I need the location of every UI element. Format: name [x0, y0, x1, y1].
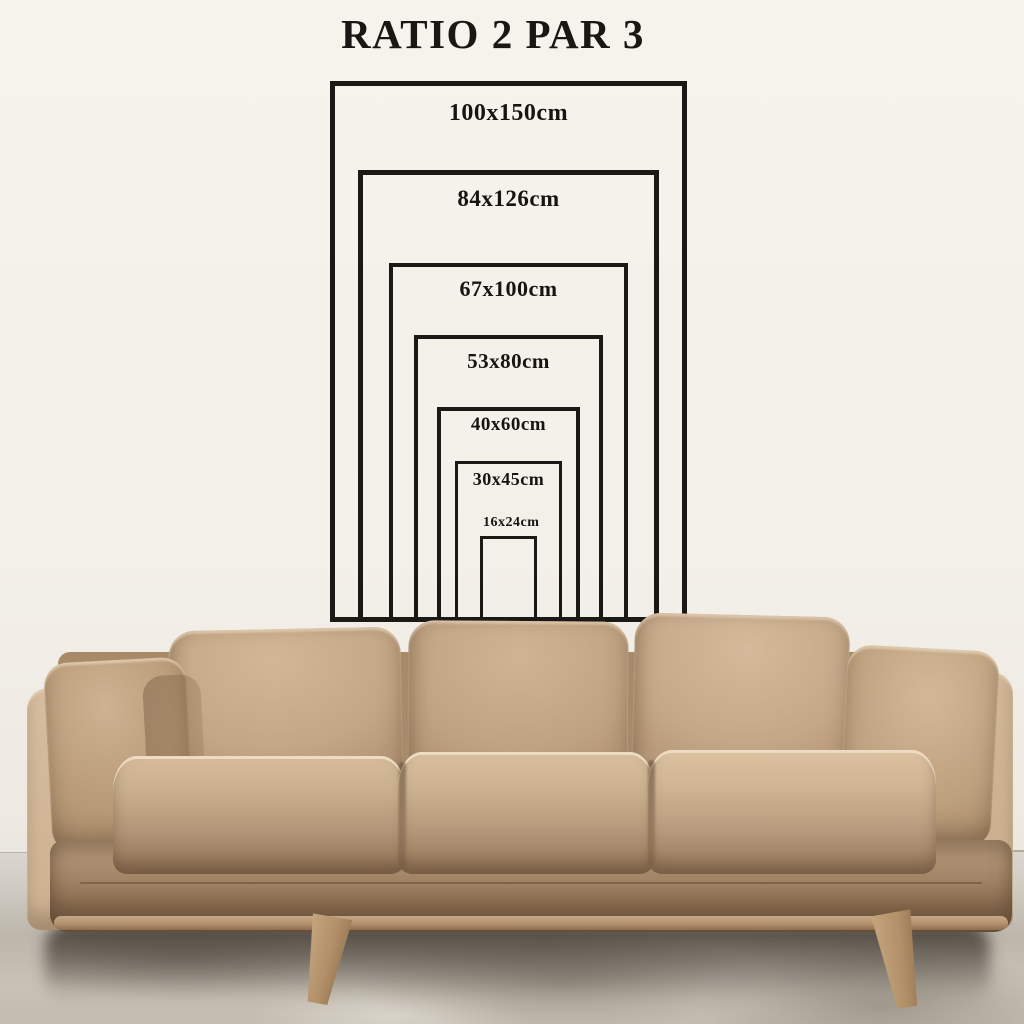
sofa-seat-seam-right	[648, 760, 655, 866]
sofa-seat-cushion-middle	[398, 752, 654, 874]
sofa-seat-seam-left	[399, 762, 406, 868]
sofa-seat-cushion-right	[648, 750, 936, 874]
scene: RATIO 2 PAR 3 100x150cm 84x126cm 67x100c…	[0, 0, 1024, 1024]
sofa-seat-cushion-left	[113, 756, 405, 874]
sofa	[0, 0, 1024, 1024]
sofa-shadow	[45, 922, 990, 1002]
